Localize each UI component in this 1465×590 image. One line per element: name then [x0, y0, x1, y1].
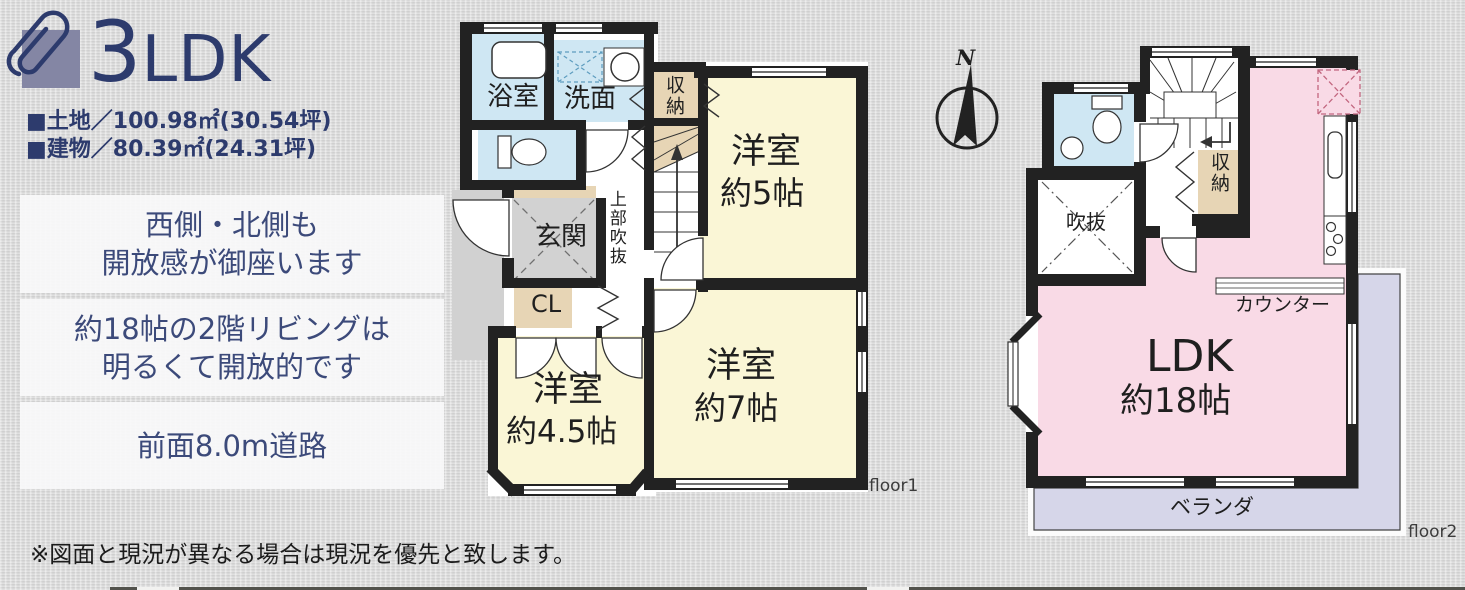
highlight-3-line-1: 前面8.0m道路	[137, 427, 327, 465]
accent-square	[22, 30, 80, 88]
wash-basin	[611, 53, 639, 81]
highlight-box-1: 西側・北側も 開放感が御座います	[20, 195, 444, 293]
label-room5-name: 洋室	[731, 134, 801, 171]
label-room7-name: 洋室	[706, 348, 776, 385]
unit-type-number: 3	[88, 3, 141, 101]
unit-type-title: 3LDK	[88, 10, 271, 94]
label-room5-size: 約5帖	[720, 177, 804, 211]
label-washroom: 洗面	[564, 86, 616, 113]
label-counter: カウンター	[1235, 296, 1330, 316]
label-room7-size: 約7帖	[694, 392, 778, 426]
label-room45-name: 洋室	[533, 372, 603, 409]
refrigerator-space	[1318, 70, 1360, 114]
disclaimer-note: ※図面と現況が異なる場合は現況を優先と致します。	[30, 535, 576, 569]
washing-machine	[558, 52, 602, 82]
label-room45-size: 約4.5帖	[506, 416, 617, 449]
highlight-1-line-2: 開放感が御座います	[101, 244, 362, 282]
building-area: ■建物／80.39㎡(24.31坪)	[26, 131, 316, 163]
floor2-tag: floor2	[1408, 524, 1457, 542]
label-storage-2f: 収納	[1208, 152, 1228, 194]
label-veranda: ベランダ	[1170, 496, 1254, 518]
floor-plan-flyer: 3LDK ■土地／100.98㎡(30.54坪) ■建物／80.39㎡(24.3…	[0, 0, 1465, 590]
floor2-bay-window	[1008, 314, 1040, 434]
label-ldk-name: LDK	[1146, 334, 1233, 380]
counter-shelf	[1216, 278, 1344, 294]
toilet-1f	[498, 136, 546, 168]
floor2-plan	[1008, 46, 1406, 536]
bathtub	[492, 42, 546, 78]
highlight-2-line-2: 明るくて開放的です	[102, 348, 362, 386]
label-entrance: 玄関	[535, 224, 587, 251]
highlight-box-2: 約18帖の2階リビングは 明るくて開放的です	[20, 299, 444, 396]
compass-icon	[937, 64, 997, 148]
highlight-1-line-1: 西側・北側も	[145, 206, 319, 244]
floor1-tag: floor1	[869, 478, 918, 496]
compass-north-label: N	[956, 47, 975, 69]
kitchen-sink	[1328, 132, 1342, 178]
label-void: 吹抜	[1066, 212, 1106, 233]
label-ldk-size: 約18帖	[1120, 384, 1231, 420]
label-storage-1f: 収納	[663, 75, 683, 117]
unit-type-suffix: LDK	[141, 23, 271, 97]
highlight-box-3: 前面8.0m道路	[20, 402, 444, 489]
label-bath: 浴室	[487, 84, 539, 111]
highlight-2-line-1: 約18帖の2階リビングは	[74, 310, 390, 348]
label-closet: CL	[531, 292, 561, 317]
label-upper-void: 上部吹抜	[606, 190, 624, 266]
